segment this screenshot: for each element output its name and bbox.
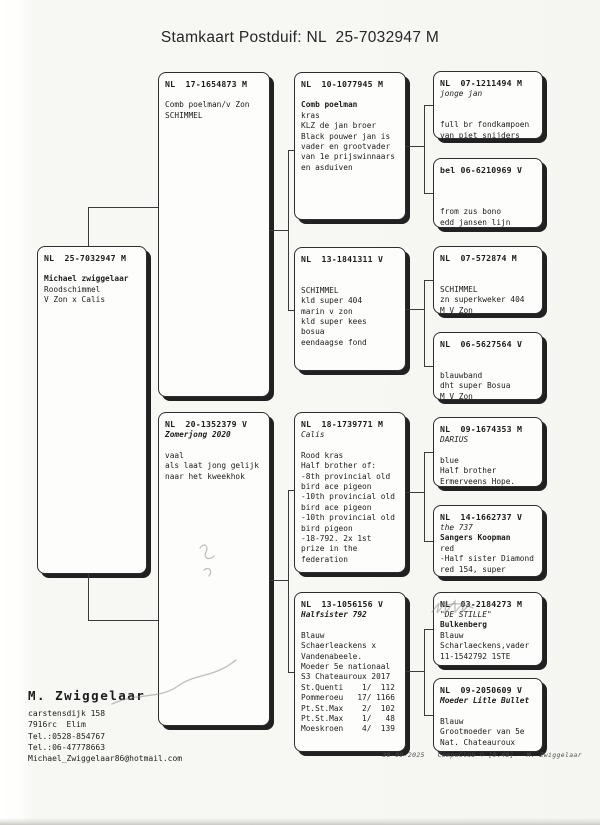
pedigree-connector-line — [424, 452, 433, 453]
pedigree-connector-line — [424, 715, 433, 716]
pedigree-connector-line — [88, 207, 89, 246]
pedigree-text-line: federation — [301, 555, 400, 565]
pedigree-text-line — [301, 265, 400, 275]
ring-number: NL 13-1056156 V — [301, 599, 400, 610]
pedigree-connector-line — [406, 309, 424, 310]
pedigree-text-line: -10th provincial old — [301, 492, 400, 502]
pedigree-text-line: from zus bono — [440, 207, 537, 217]
pedigree-text-line: -8th provincial old — [301, 472, 400, 482]
pedigree-text-line: bird pigeon — [301, 524, 400, 534]
pedigree-connector-line — [406, 146, 424, 147]
pedigree-box-sire: NL 17-1654873 MComb poelman/v ZonSCHIMME… — [158, 72, 270, 397]
pedigree-connector-line — [406, 492, 424, 493]
pedigree-text-line: blue — [440, 456, 537, 466]
pedigree-text-line: naar het kweekhok — [165, 472, 264, 482]
pedigree-connector-line — [424, 366, 433, 367]
pedigree-text-line: bird ace pigeon — [301, 482, 400, 492]
ring-number: NL 03-2184273 M — [440, 599, 537, 610]
ring-number: NL 09-2050609 V — [440, 685, 537, 696]
ring-number: NL 14-1662737 V — [440, 512, 537, 523]
pedigree-text-line: -Half sister Diamond — [440, 554, 537, 564]
pedigree-text-line: prize in the — [301, 544, 400, 554]
pedigree-text-line: Sangers Koopman — [440, 533, 537, 543]
pedigree-connector-line — [424, 105, 433, 106]
ring-number: NL 13-1841311 V — [301, 254, 400, 265]
pedigree-text-line: van piet snijders — [440, 131, 537, 139]
pedigree-box-pgm: NL 13-1841311 VSCHIMMELkld super 404mari… — [294, 247, 406, 371]
pedigree-text-line — [440, 445, 537, 455]
pedigree-box-ggf2: NL 07-572874 MSCHIMMELzn superkweker 404… — [433, 246, 543, 314]
pedigree-text-line: Bulkenberg — [440, 620, 537, 630]
ring-number: NL 25-7032947 M — [44, 253, 141, 264]
pedigree-text-line — [440, 197, 537, 207]
owner-phone: Tel.:06-47778663 — [28, 742, 182, 753]
pedigree-text-line: Vandenabeele. — [301, 652, 400, 662]
pedigree-text-line: edd jansen lijn — [440, 218, 537, 228]
pedigree-text-line — [44, 264, 141, 274]
pedigree-text-line: Half brother — [440, 466, 537, 476]
owner-block: M. Zwiggelaar carstensdijk 158 7916rc El… — [28, 688, 182, 764]
pedigree-text-line: Half brother of: — [301, 461, 400, 471]
ring-number: bel 06-6210969 V — [440, 165, 537, 176]
pedigree-text-line: als laat jong gelijk — [165, 461, 264, 471]
pedigree-text-line — [301, 620, 400, 630]
pedigree-text-line: Ermerveens Hope. — [440, 477, 537, 487]
pedigree-text-line: M V Zon — [440, 306, 537, 314]
pedigree-text-line: Moeder Litle Bullet — [440, 696, 537, 706]
pedigree-text-line: Schaerleackens x — [301, 641, 400, 651]
pedigree-text-line: blauwband — [440, 371, 537, 381]
ring-number: NL 20-1352379 V — [165, 419, 264, 430]
pedigree-text-line: Roodschimmel — [44, 285, 141, 295]
pedigree-text-line — [440, 360, 537, 370]
pedigree-text-line: Black pouwer jan is — [301, 132, 400, 142]
pedigree-box-ggf4: NL 03-2184273 M"DE STILLE"BulkenbergBlau… — [433, 592, 543, 666]
pedigree-text-line: the 737 — [440, 523, 537, 533]
pedigree-text-line: Comb poelman/v Zon — [165, 100, 264, 110]
pedigree-text-line — [165, 90, 264, 100]
pedigree-connector-line — [288, 310, 294, 311]
pedigree-text-line: Scharlaeckens,vader — [440, 641, 537, 651]
pedigree-box-ggm4: NL 09-2050609 VMoeder Litle BulletBlauwG… — [433, 678, 543, 752]
pedigree-text-line: Moeder 5e nationaal — [301, 662, 400, 672]
ring-number: NL 10-1077945 M — [301, 79, 400, 90]
pedigree-text-line — [440, 274, 537, 284]
pedigree-text-line: Moeskroen 4/ 139 — [301, 724, 400, 734]
pedigree-text-line: Pt.St.Max 2/ 102 — [301, 704, 400, 714]
pedigree-text-line — [301, 440, 400, 450]
owner-address-line: carstensdijk 158 — [28, 708, 182, 719]
pedigree-connector-line — [288, 150, 289, 310]
pedigree-card-scan: Stamkaart Postduif: NL 25-7032947 M NL 2… — [0, 0, 600, 825]
pedigree-text-line: St.Quenti 1/ 112 — [301, 683, 400, 693]
pedigree-text-line: Zomerjong 2020 — [165, 430, 264, 440]
pedigree-connector-line — [424, 105, 425, 193]
pedigree-text-line: marin v zon — [301, 307, 400, 317]
pedigree-box-ggm1: bel 06-6210969 Vfrom zus bonoedd jansen … — [433, 158, 543, 228]
pedigree-connector-line — [406, 671, 424, 672]
pedigree-connector-line — [288, 150, 294, 151]
pedigree-text-line: red 154, super — [440, 565, 537, 575]
pedigree-text-line — [301, 90, 400, 100]
pedigree-text-line: bird ace pigeon — [301, 503, 400, 513]
pedigree-connector-line — [88, 574, 89, 620]
pedigree-text-line: -18-792. 2x 1st — [301, 534, 400, 544]
pedigree-connector-line — [88, 207, 158, 208]
pedigree-connector-line — [424, 280, 433, 281]
pedigree-text-line: kras — [301, 111, 400, 121]
pedigree-text-line: Blauw — [440, 631, 537, 641]
pedigree-text-line: SCHIMMEL — [440, 285, 537, 295]
pedigree-text-line — [440, 110, 537, 120]
pedigree-text-line: Grootmoeder van 5e — [440, 727, 537, 737]
page-title: Stamkaart Postduif: NL 25-7032947 M — [0, 29, 600, 47]
pedigree-connector-line — [424, 280, 425, 366]
ring-number: NL 07-1211494 M — [440, 78, 537, 89]
pedigree-text-line: SCHIMMEL — [165, 111, 264, 121]
pedigree-text-line — [440, 176, 537, 186]
pedigree-text-line: full br fondkampoen — [440, 120, 537, 130]
pedigree-box-ggm3: NL 14-1662737 Vthe 737Sangers Koopmanred… — [433, 505, 543, 577]
pedigree-text-line: Rood kras — [301, 451, 400, 461]
pedigree-text-line — [440, 99, 537, 109]
pedigree-text-line: Blauw — [301, 631, 400, 641]
pedigree-text-line: SCHIMMEL — [301, 286, 400, 296]
pedigree-text-line: kld super 404 — [301, 296, 400, 306]
pedigree-text-line: Halfsister 792 — [301, 610, 400, 620]
pedigree-text-line — [440, 264, 537, 274]
pedigree-box-pgf: NL 10-1077945 MComb poelmankrasKLZ de ja… — [294, 72, 406, 220]
ring-number: NL 18-1739771 M — [301, 419, 400, 430]
pedigree-text-line: vaal — [165, 451, 264, 461]
pedigree-text-line: -10th provincial old — [301, 513, 400, 523]
pedigree-text-line: V Zon x Calis — [44, 295, 141, 305]
pedigree-text-line: Blauw — [440, 717, 537, 727]
pedigree-text-line: red — [440, 544, 537, 554]
pedigree-box-ggm2: NL 06-5627564 Vblauwbanddht super BosuaM… — [433, 332, 543, 400]
pedigree-connector-line — [424, 629, 433, 630]
pedigree-connector-line — [88, 620, 158, 621]
pedigree-connector-line — [288, 672, 294, 673]
pedigree-box-ggf1: NL 07-1211494 Mjonge janfull br fondkamp… — [433, 71, 543, 139]
pedigree-connector-line — [288, 490, 289, 672]
pedigree-text-line: Nat. Chateauroux — [440, 738, 537, 748]
ring-number: NL 09-1674353 M — [440, 424, 537, 435]
pedigree-text-line: Pommeroeu 17/ 1166 — [301, 693, 400, 703]
ring-number: NL 07-572874 M — [440, 253, 537, 264]
pedigree-text-line: KLZ de jan broer — [301, 121, 400, 131]
pedigree-text-line: zn superkweker 404 — [440, 295, 537, 305]
pedigree-text-line: kld super kees — [301, 317, 400, 327]
pedigree-text-line: Comb poelman — [301, 100, 400, 110]
owner-name: M. Zwiggelaar — [28, 688, 182, 703]
pedigree-text-line: en asduiven — [301, 163, 400, 173]
pedigree-box-subject: NL 25-7032947 MMichael zwiggelaarRoodsch… — [37, 246, 147, 574]
pedigree-connector-line — [424, 541, 433, 542]
pedigree-text-line: M V Zon — [440, 392, 537, 400]
pedigree-text-line: S3 Chateauroux 2017 — [301, 672, 400, 682]
pedigree-text-line: DARIUS — [440, 435, 537, 445]
pedigree-text-line: van 1e prijswinnaars — [301, 152, 400, 162]
pedigree-box-mgm: NL 13-1056156 VHalfsister 792BlauwSchaer… — [294, 592, 406, 752]
pedigree-text-line: Calis — [301, 430, 400, 440]
pedigree-box-mgf: NL 18-1739771 MCalisRood krasHalf brothe… — [294, 412, 406, 573]
pedigree-text-line: bosua — [301, 327, 400, 337]
owner-phone: Tel.:0528-854767 — [28, 731, 182, 742]
pedigree-connector-line — [424, 629, 425, 715]
pedigree-text-line: "DE STILLE" — [440, 610, 537, 620]
pedigree-text-line — [301, 275, 400, 285]
pedigree-connector-line — [424, 193, 433, 194]
pedigree-connector-line — [424, 452, 425, 541]
pedigree-connector-line — [288, 490, 294, 491]
print-footer: 30-09-2025 CompuClub © [9.48] M. Zwiggel… — [382, 751, 582, 759]
pedigree-text-line: eendaagse fond — [301, 338, 400, 348]
pedigree-text-line — [440, 186, 537, 196]
pedigree-box-dam: NL 20-1352379 VZomerjong 2020vaalals laa… — [158, 412, 270, 726]
pedigree-text-line — [440, 350, 537, 360]
pedigree-text-line: dht super Bosua — [440, 381, 537, 391]
owner-address-line: 7916rc Elim — [28, 719, 182, 730]
ring-number: NL 17-1654873 M — [165, 79, 264, 90]
ring-number: NL 06-5627564 V — [440, 339, 537, 350]
pedigree-text-line: Michael zwiggelaar — [44, 274, 141, 284]
pedigree-connector-line — [270, 580, 288, 581]
pedigree-text-line: vader en grootvader — [301, 142, 400, 152]
pedigree-box-ggf3: NL 09-1674353 MDARIUSblueHalf brotherErm… — [433, 417, 543, 487]
pedigree-text-line — [165, 440, 264, 450]
pedigree-text-line: jonge jan — [440, 89, 537, 99]
pedigree-text-line — [440, 706, 537, 716]
pedigree-connector-line — [270, 230, 288, 231]
pedigree-text-line: 11-1542792 1STE — [440, 652, 537, 662]
owner-email: Michael_Zwiggelaar86@hotmail.com — [28, 753, 182, 764]
pedigree-text-line: Pt.St.Max 1/ 48 — [301, 714, 400, 724]
